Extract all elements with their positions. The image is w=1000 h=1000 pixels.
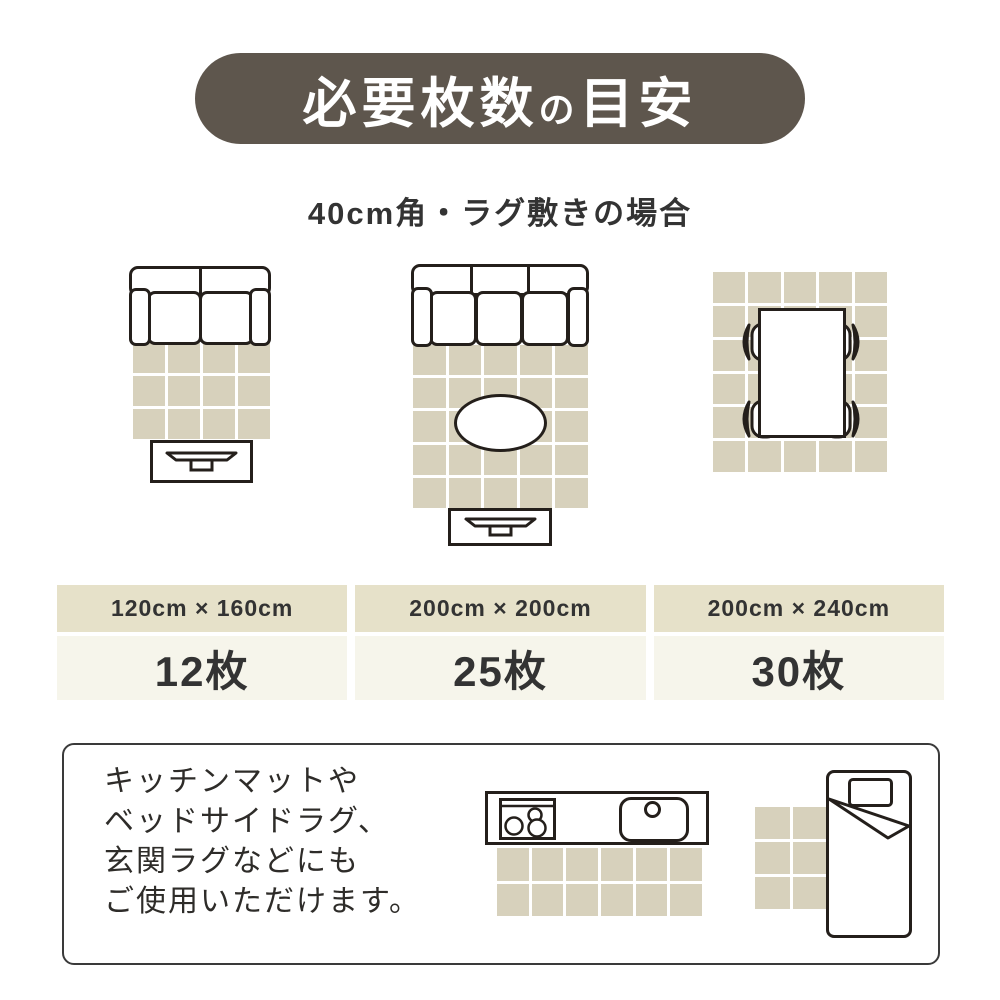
tv-board-icon bbox=[448, 508, 552, 546]
rug-tile bbox=[484, 478, 517, 508]
rug-tile bbox=[555, 345, 588, 375]
size-column: 120cm × 160cm 12枚 bbox=[57, 585, 347, 700]
rug-tile bbox=[636, 884, 668, 917]
rug-tile bbox=[713, 272, 745, 303]
rug-tile bbox=[555, 478, 588, 508]
sofa-seat bbox=[147, 291, 202, 345]
rug-tile bbox=[636, 848, 668, 881]
subtitle: 40cm角・ラグ敷きの場合 bbox=[0, 188, 1000, 233]
rug-tile bbox=[784, 272, 816, 303]
rug-tile bbox=[670, 884, 702, 917]
rug-tile bbox=[520, 445, 553, 475]
rug-tile bbox=[133, 343, 165, 373]
rug-tile bbox=[555, 445, 588, 475]
infographic-canvas: 必要枚数 の 目安 40cm角・ラグ敷きの場合 bbox=[0, 0, 1000, 1000]
note-line: キッチンマットや bbox=[104, 762, 421, 802]
title-tail: 目安 bbox=[580, 59, 698, 138]
rug-tile bbox=[793, 877, 828, 909]
kitchen-mat-grid bbox=[497, 848, 702, 916]
rug-tile bbox=[532, 848, 564, 881]
tv-icon bbox=[452, 511, 549, 543]
size-column: 200cm × 200cm 25枚 bbox=[355, 585, 645, 700]
note-line: ベッドサイドラグ、 bbox=[104, 802, 421, 842]
sofa-seat bbox=[521, 291, 569, 346]
rug-tile bbox=[203, 409, 235, 439]
rug-tile bbox=[566, 884, 598, 917]
tv-board-icon bbox=[150, 440, 253, 483]
bedside-mat-grid bbox=[755, 807, 827, 909]
rug-tile bbox=[520, 478, 553, 508]
sofa-armrest bbox=[411, 287, 433, 347]
rug-tile bbox=[748, 441, 780, 472]
sofa-backrest-divider bbox=[470, 266, 473, 294]
sofa-seat bbox=[199, 291, 254, 345]
size-label: 200cm × 200cm bbox=[355, 585, 645, 632]
rug-tile bbox=[784, 441, 816, 472]
rug-tile bbox=[497, 848, 529, 881]
rug-tile bbox=[238, 343, 270, 373]
count-label: 12枚 bbox=[57, 636, 347, 700]
sofa-seat bbox=[429, 291, 477, 346]
rug-tile bbox=[755, 842, 790, 874]
rug-tile bbox=[449, 445, 482, 475]
rug-tile bbox=[413, 378, 446, 408]
rug-tile bbox=[555, 378, 588, 408]
count-label: 25枚 bbox=[355, 636, 645, 700]
sofa-backrest-divider bbox=[527, 266, 530, 294]
rug-tile bbox=[133, 376, 165, 406]
rug-tile bbox=[819, 441, 851, 472]
rug-tile bbox=[819, 272, 851, 303]
rug-tile bbox=[793, 807, 828, 839]
rug-tile bbox=[133, 409, 165, 439]
note-line: ご使用いただけます。 bbox=[104, 882, 421, 922]
rug-tile bbox=[203, 376, 235, 406]
stove-icon bbox=[499, 798, 556, 840]
rug-tile bbox=[855, 272, 887, 303]
rug-tile bbox=[413, 345, 446, 375]
rug-tile bbox=[168, 409, 200, 439]
sofa-seat bbox=[475, 291, 523, 346]
rug-tile bbox=[601, 884, 633, 917]
rug-tile bbox=[601, 848, 633, 881]
rug-tile bbox=[755, 807, 790, 839]
sofa-armrest bbox=[249, 288, 271, 346]
rug-tile bbox=[203, 343, 235, 373]
rug-tile bbox=[520, 345, 553, 375]
rug-tile bbox=[566, 848, 598, 881]
page-title: 必要枚数 の 目安 bbox=[302, 59, 697, 138]
title-main: 必要枚数 bbox=[302, 59, 538, 138]
rug-tile bbox=[168, 376, 200, 406]
dining-table-icon bbox=[758, 308, 846, 438]
size-label: 200cm × 240cm bbox=[654, 585, 944, 632]
rug-tile bbox=[238, 376, 270, 406]
rug-grid-1 bbox=[133, 343, 270, 439]
tv-icon bbox=[153, 443, 250, 480]
oval-table-icon bbox=[454, 394, 547, 452]
rug-tile bbox=[670, 848, 702, 881]
rug-tile bbox=[413, 478, 446, 508]
rug-tile bbox=[532, 884, 564, 917]
note-line: 玄関ラグなどにも bbox=[104, 842, 421, 882]
size-label: 120cm × 160cm bbox=[57, 585, 347, 632]
size-table: 120cm × 160cm 12枚 200cm × 200cm 25枚 200c… bbox=[57, 585, 944, 700]
count-label: 30枚 bbox=[654, 636, 944, 700]
title-particle: の bbox=[538, 81, 579, 133]
rug-tile bbox=[793, 842, 828, 874]
rug-tile bbox=[855, 441, 887, 472]
sofa-armrest bbox=[567, 287, 589, 347]
rug-tile bbox=[748, 272, 780, 303]
rug-tile bbox=[713, 441, 745, 472]
sofa-backrest-divider bbox=[199, 268, 202, 295]
note-text: キッチンマットや ベッドサイドラグ、 玄関ラグなどにも ご使用いただけます。 bbox=[104, 762, 421, 922]
size-column: 200cm × 240cm 30枚 bbox=[654, 585, 944, 700]
rug-tile bbox=[449, 345, 482, 375]
rug-tile bbox=[497, 884, 529, 917]
blanket-fold-icon bbox=[826, 770, 912, 938]
rug-tile bbox=[168, 343, 200, 373]
sofa-armrest bbox=[129, 288, 151, 346]
faucet-icon bbox=[644, 801, 661, 818]
rug-tile bbox=[413, 411, 446, 441]
title-banner: 必要枚数 の 目安 bbox=[195, 53, 805, 144]
rug-tile bbox=[413, 445, 446, 475]
rug-tile bbox=[755, 877, 790, 909]
rug-tile bbox=[484, 345, 517, 375]
rug-tile bbox=[555, 411, 588, 441]
rug-tile bbox=[449, 478, 482, 508]
rug-tile bbox=[238, 409, 270, 439]
